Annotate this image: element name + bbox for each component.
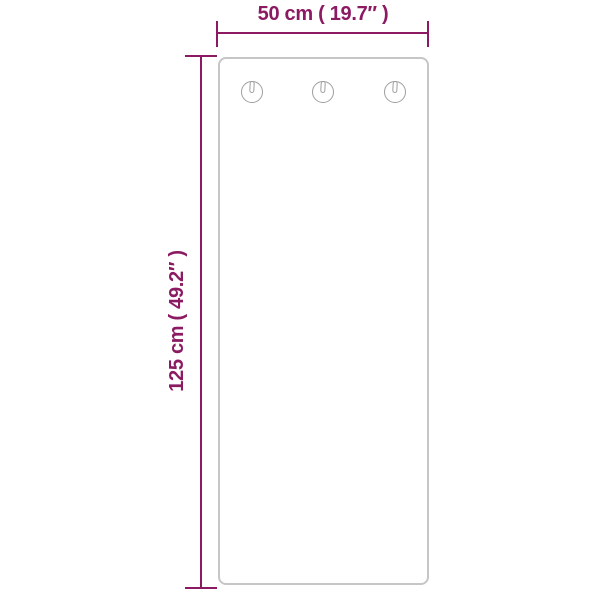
width-dimension-line	[216, 32, 429, 34]
keyhole-icon	[241, 81, 263, 103]
height-dimension-line	[200, 55, 202, 589]
keyhole-slot-icon	[249, 81, 255, 93]
height-dimension-tick-top	[185, 55, 217, 57]
width-dimension-label: 50 cm ( 19.7″ )	[217, 3, 429, 26]
product-dimension-diagram: 50 cm ( 19.7″ ) 125 cm ( 49.2″ )	[0, 0, 600, 600]
wall-panel	[218, 57, 429, 585]
width-dimension-tick-right	[427, 21, 429, 47]
height-dimension-label: 125 cm ( 49.2″ )	[164, 201, 190, 441]
width-dimension-tick-left	[216, 21, 218, 47]
keyhole-slot-icon	[392, 81, 398, 93]
height-dimension-tick-bottom	[185, 587, 217, 589]
keyhole-icon	[312, 81, 334, 103]
keyhole-slot-icon	[320, 81, 326, 93]
keyhole-icon	[384, 81, 406, 103]
